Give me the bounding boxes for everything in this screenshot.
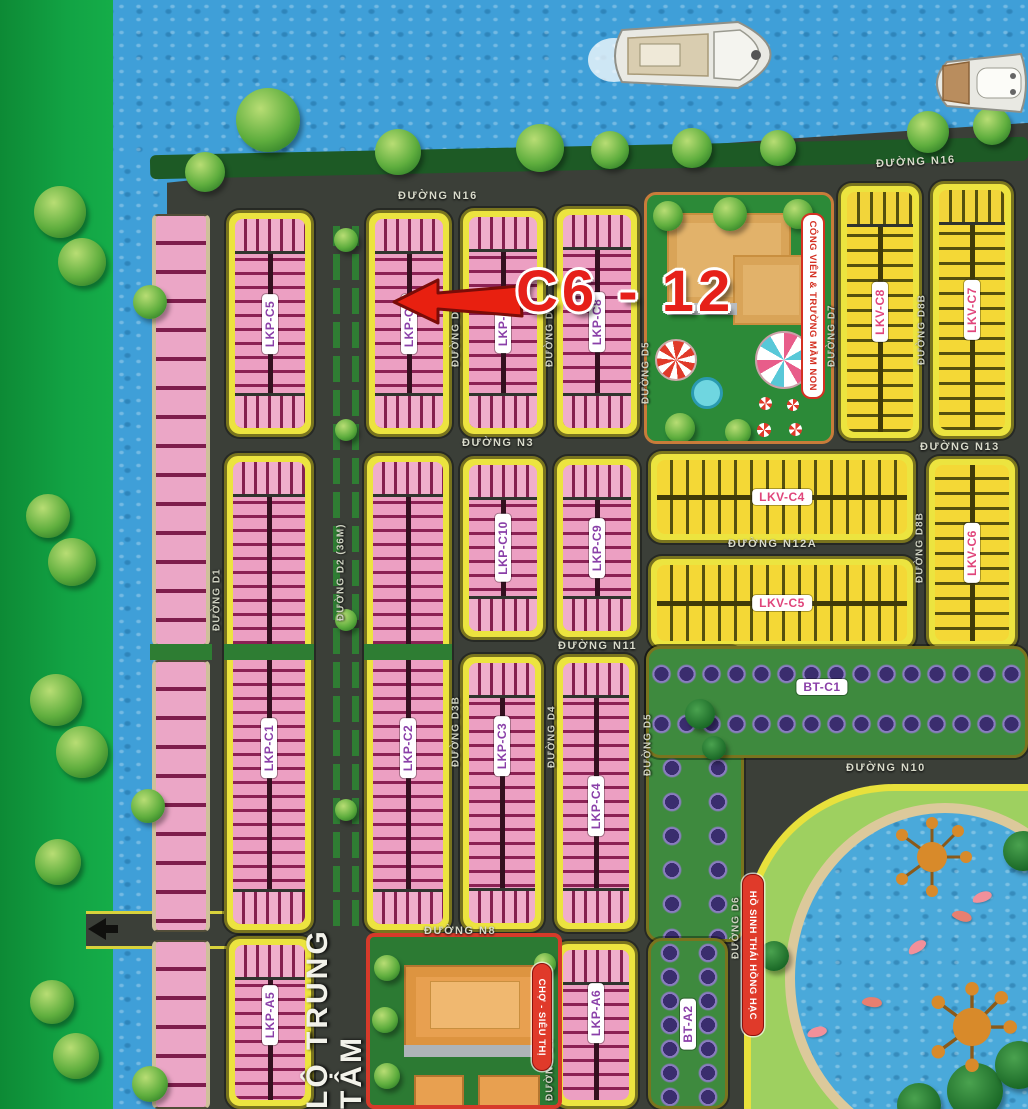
park-kindergarten-label-text: CÔNG VIÊN & TRƯỜNG MẦM NON: [808, 221, 819, 391]
park-kindergarten-label: CÔNG VIÊN & TRƯỜNG MẦM NON: [801, 213, 825, 399]
street-label-d1: ĐƯỜNG D1: [206, 558, 228, 642]
tree-icon: [58, 238, 106, 286]
block-label: LKP-A6: [588, 983, 604, 1043]
master-plan-map: LKP-C5 LKP-C6 LKP-C7 LKP-C8 LKP-C1 LKP-C…: [0, 0, 1028, 1109]
block-lkp-a6: LKP-A6: [554, 941, 638, 1109]
street-label-d2: ĐƯỜNG D2 (36M): [330, 512, 352, 632]
tree-icon: [132, 1066, 168, 1102]
tree-icon: [236, 88, 300, 152]
block-label: LKP-C2: [400, 718, 416, 778]
block-lkp-c5: LKP-C5: [226, 210, 314, 437]
candy-decoration-icon: [787, 399, 799, 411]
highlight-arrow-icon: [392, 276, 524, 330]
street-label-d7: ĐƯỜNG D7: [822, 286, 842, 386]
block-label: LKP-C5: [262, 293, 278, 353]
tree-icon: [53, 1033, 99, 1079]
tree-icon: [685, 699, 715, 729]
street-label-n12a: ĐƯỜNG N12A: [728, 538, 817, 550]
street-label-d5: ĐƯỜNG D5: [638, 686, 658, 804]
block-label: LKP-C4: [588, 776, 604, 836]
tree-icon: [516, 124, 564, 172]
peppermint-decoration-icon: [655, 339, 697, 381]
market-building-small: [414, 1075, 464, 1109]
tree-icon: [26, 494, 70, 538]
kindergarten-building-wing: [733, 255, 809, 325]
central-road-label: LỘ TRUNG TÂM: [312, 898, 358, 1109]
grass-break: [150, 644, 212, 660]
tree-icon: [591, 131, 629, 169]
tree-icon: [335, 799, 357, 821]
block-label: LKV-C7: [964, 280, 980, 340]
market-canopy: [404, 1045, 544, 1057]
tree-icon: [48, 538, 96, 586]
market-label: CHỢ - SIÊU THỊ: [532, 963, 552, 1071]
street-label-d8b: ĐƯỜNG D8B: [910, 492, 930, 604]
block-lkp-c4: LKP-C4: [554, 654, 638, 932]
block-lkp-c3: LKP-C3: [460, 654, 544, 932]
tree-icon: [713, 197, 747, 231]
street-label-n16: ĐƯỜNG N16: [398, 190, 478, 202]
block-label: LKV-C8: [872, 282, 888, 342]
tree-icon: [665, 413, 695, 443]
boat-ramp-arrow-stem: [104, 925, 118, 933]
grass-break: [224, 644, 314, 660]
kids-pool-icon: [691, 377, 723, 409]
tree-icon: [335, 419, 357, 441]
tree-icon: [374, 955, 400, 981]
tree-icon: [34, 186, 86, 238]
tree-icon: [702, 736, 726, 760]
block-lkp-c9: LKP-C9: [554, 456, 640, 640]
market-building-small: [478, 1075, 540, 1109]
tree-icon: [35, 839, 81, 885]
block-lkp-c1: LKP-C1: [224, 453, 314, 933]
block-label: BT-C1: [796, 679, 847, 695]
tree-icon: [56, 726, 108, 778]
block-label: LKV-C4: [752, 489, 812, 505]
yacht-icon: [925, 46, 1028, 120]
block-lkp-c10: LKP-C10: [460, 456, 546, 640]
candy-decoration-icon: [757, 423, 771, 437]
block-label: LKP-C9: [589, 518, 605, 578]
street-label-d3b: ĐƯỜNG D3B: [446, 690, 466, 774]
tree-icon: [30, 674, 82, 726]
candy-decoration-icon: [789, 423, 802, 436]
block-label: LKP-C10: [495, 514, 511, 582]
lake-sun-decoration-icon: [892, 817, 972, 897]
street-label-n11: ĐƯỜNG N11: [558, 640, 637, 652]
street-label-d5: ĐƯỜNG D5: [636, 324, 656, 422]
lake-label-text: HỒ SINH THÁI HỒNG HẠC: [748, 890, 759, 1019]
yacht-icon: [588, 10, 813, 102]
market-building-roof-ridge: [430, 981, 520, 1029]
street-label-n8: ĐƯỜNG N8: [424, 925, 496, 937]
block-label: LKV-C5: [752, 595, 812, 611]
candy-decoration-icon: [759, 397, 772, 410]
street-label-n13: ĐƯỜNG N13: [920, 441, 1000, 453]
block-label: LKP-C1: [261, 718, 277, 778]
block-lkv-c4: LKV-C4: [648, 451, 916, 543]
block-label: LKV-C6: [964, 523, 980, 583]
tree-icon: [133, 285, 167, 319]
street-label-n3: ĐƯỜNG N3: [462, 437, 534, 449]
tree-icon: [375, 129, 421, 175]
block-label: LKP-C3: [494, 716, 510, 776]
tree-icon: [372, 1007, 398, 1033]
lake-label: HỒ SINH THÁI HỒNG HẠC: [742, 874, 764, 1036]
block-label: BT-A2: [680, 998, 696, 1049]
lake-sun-decoration-icon: [927, 982, 1017, 1072]
tree-icon: [725, 419, 751, 444]
tree-icon: [334, 228, 358, 252]
block-lkv-c8: LKV-C8: [838, 183, 922, 441]
lake-park: [744, 784, 1028, 1109]
grass-break: [364, 644, 452, 660]
block-lkp-c2: LKP-C2: [364, 453, 452, 933]
tree-icon: [131, 789, 165, 823]
block-label: LKP-A5: [262, 985, 278, 1045]
tree-icon: [30, 980, 74, 1024]
tree-icon: [653, 201, 683, 231]
block-bt-a2: BT-A2: [648, 938, 728, 1109]
market-supermarket: CHỢ - SIÊU THỊ: [366, 933, 562, 1109]
market-label-text: CHỢ - SIÊU THỊ: [537, 978, 548, 1055]
block-lkv-c5: LKV-C5: [648, 556, 916, 650]
lot-strip: [152, 214, 210, 646]
street-label-n10: ĐƯỜNG N10: [846, 762, 926, 774]
tree-icon: [374, 1063, 400, 1089]
boulevard-median-right: [352, 226, 359, 926]
tree-icon: [760, 130, 796, 166]
block-lkv-c6: LKV-C6: [926, 456, 1018, 650]
street-label-d4: ĐƯỜNG D4: [542, 698, 562, 776]
block-lkv-c7: LKV-C7: [930, 181, 1014, 439]
tree-icon: [672, 128, 712, 168]
street-label-d8b: ĐƯỜNG D8B: [912, 276, 932, 384]
highlight-lot-code: C6 - 12: [516, 258, 734, 325]
tree-icon: [185, 152, 225, 192]
